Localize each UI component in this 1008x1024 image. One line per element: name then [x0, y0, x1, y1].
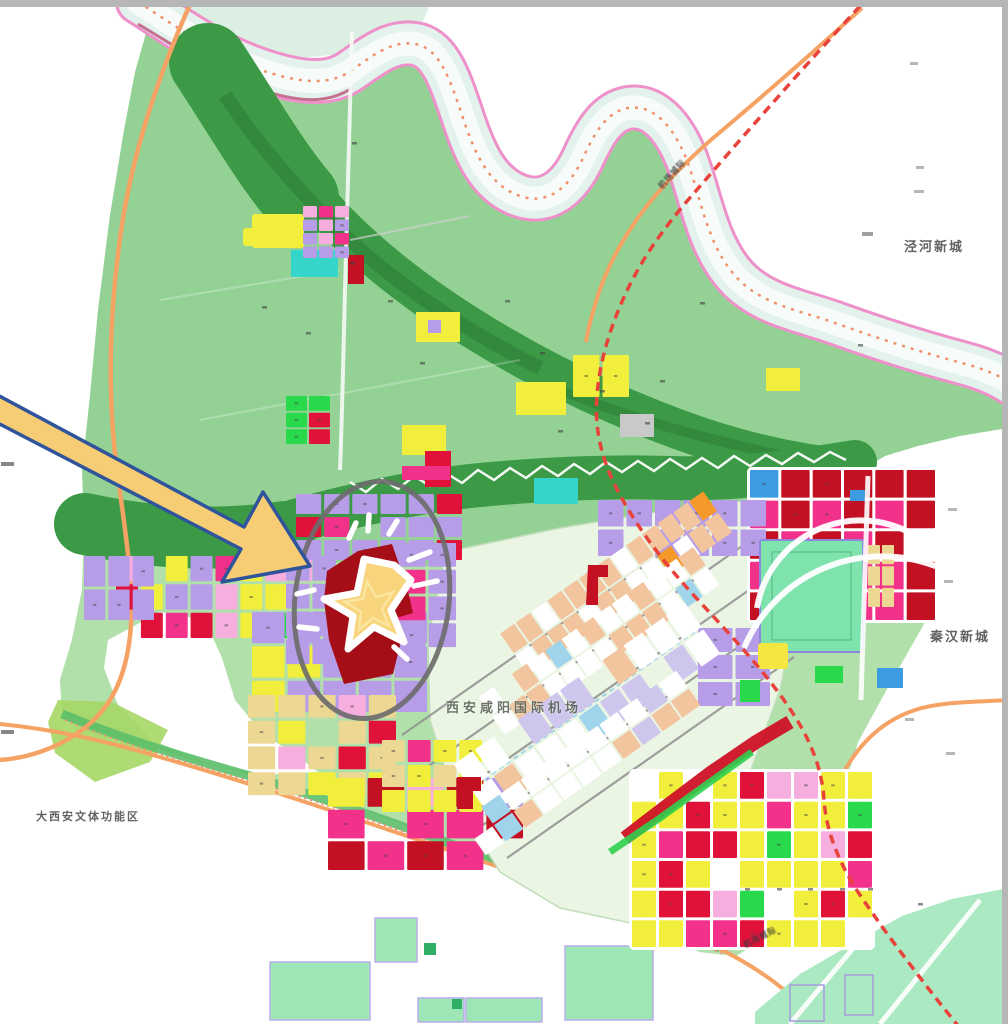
zone-cell-mark	[723, 542, 726, 544]
zone-cell-mark	[392, 750, 395, 752]
zone-cell-mark	[723, 933, 726, 935]
label-culture-sports-zone: 大西安文体功能区	[36, 808, 140, 824]
zone-cell	[767, 802, 791, 829]
mint-parcel-2	[375, 918, 417, 962]
zone-cell	[108, 556, 129, 587]
zone-cell	[339, 721, 366, 744]
zone-cell	[868, 566, 880, 585]
cyan-parcel-band	[534, 478, 578, 504]
zone-cell	[278, 747, 305, 770]
zone-cell	[794, 831, 818, 858]
map-canvas	[0, 0, 1008, 1024]
map-text-smudge	[777, 888, 782, 891]
zone-cell-mark	[714, 666, 717, 668]
map-text-smudge	[944, 580, 953, 583]
map-text-smudge	[388, 300, 393, 303]
zone-cell-mark	[752, 542, 755, 544]
map-text-smudge	[540, 352, 545, 355]
green-dot-2	[452, 999, 462, 1009]
zone-cell-mark	[175, 596, 178, 598]
zone-cell-mark	[424, 855, 427, 857]
zone-cell	[740, 802, 764, 829]
zone-cell	[713, 831, 737, 858]
zone-cell-mark	[463, 855, 466, 857]
map-text-smudge	[600, 390, 605, 393]
magenta-strip-a	[402, 466, 450, 480]
zone-cell-mark	[469, 750, 472, 752]
zone-cell	[278, 721, 305, 744]
zone-cell	[328, 778, 365, 807]
zone-cell-mark	[723, 784, 726, 786]
zone-cell-mark	[225, 624, 228, 626]
zone-cell-mark	[320, 757, 323, 759]
zone-cell	[296, 494, 321, 514]
map-text-smudge	[352, 142, 357, 145]
zone-cell-mark	[322, 567, 325, 569]
qinhan-green-parcel-2	[740, 680, 760, 702]
qinhan-green-parcel-1	[815, 666, 843, 683]
zone-cell-mark	[714, 639, 717, 641]
zone-cell-mark	[642, 873, 645, 875]
map-text-smudge	[1, 462, 14, 466]
map-text-smudge	[700, 302, 705, 305]
screenshot-frame: 泾河新城 秦汉新城 大西安文体功能区 西安咸阳国际机场 机场城际 机场城际	[0, 0, 1008, 1024]
zone-cell-mark	[440, 581, 443, 583]
zone-cell	[848, 831, 872, 858]
zone-cell-mark	[443, 750, 446, 752]
zone-cell	[794, 861, 818, 888]
zone-cell	[767, 772, 791, 799]
zone-cell	[303, 247, 317, 259]
zone-cell-mark	[609, 542, 612, 544]
zone-cell	[740, 861, 764, 888]
zone-cell	[216, 584, 238, 609]
zone-cell-mark	[858, 814, 861, 816]
zone-cell-mark	[804, 784, 807, 786]
zone-cell	[191, 584, 213, 609]
zone-cell-mark	[320, 705, 323, 707]
zone-cell-mark	[93, 604, 96, 606]
zone-cell-mark	[384, 855, 387, 857]
zone-cell-mark	[751, 666, 754, 668]
yellow-parcel-c	[516, 382, 566, 415]
zone-cell-mark	[295, 402, 298, 404]
zone-cell	[434, 765, 457, 787]
zone-cell-mark	[392, 775, 395, 777]
map-text-smudge	[808, 888, 813, 891]
zone-cell	[868, 588, 880, 607]
zone-cell	[84, 556, 105, 587]
zone-cell-mark	[340, 224, 343, 226]
map-text-smudge	[350, 262, 355, 265]
zone-cell	[848, 772, 872, 799]
zone-cell-mark	[335, 526, 338, 528]
zone-cell-mark	[409, 661, 412, 663]
map-text-smudge	[660, 380, 665, 383]
zone-cell-mark	[175, 624, 178, 626]
zone-cell-mark	[609, 512, 612, 514]
zone-cell-mark	[267, 627, 270, 629]
frame-top-bar	[0, 0, 1008, 7]
zone-cell	[781, 470, 809, 498]
zone-cell-mark	[318, 419, 321, 421]
zone-cell-mark	[804, 903, 807, 905]
map-text-smudge	[262, 306, 267, 309]
zone-cell-mark	[363, 503, 366, 505]
zone-cell-mark	[410, 634, 413, 636]
yellow-parcel-b	[402, 425, 446, 455]
yellow-parcel-d	[766, 368, 800, 391]
sparkle-dash-6	[297, 590, 314, 594]
map-text-smudge	[505, 300, 510, 303]
zone-cell	[309, 396, 330, 411]
zone-cell	[319, 233, 333, 245]
mint-parcel-5	[565, 946, 653, 1020]
zone-cell-mark	[825, 483, 828, 485]
zone-cell	[686, 831, 710, 858]
zone-cell-mark	[440, 607, 443, 609]
map-text-smudge	[918, 903, 923, 906]
map-text-smudge	[840, 888, 845, 891]
zone-cell-mark	[614, 375, 617, 377]
zone-cell	[821, 920, 845, 947]
zone-cell-mark	[345, 823, 348, 825]
zone-cell-mark	[714, 693, 717, 695]
zone-cell-mark	[638, 512, 641, 514]
zone-cell	[408, 740, 431, 762]
zone-cell	[319, 220, 333, 232]
qinhan-blue-parcel	[877, 668, 903, 688]
zone-cell-mark	[669, 784, 672, 786]
zone-cell-mark	[750, 784, 753, 786]
mint-parcel-1	[270, 962, 370, 1020]
zone-cell-mark	[417, 775, 420, 777]
zone-cell	[381, 494, 406, 514]
zone-cell	[335, 206, 349, 218]
map-text-smudge	[1, 730, 14, 734]
zone-cell-mark	[642, 844, 645, 846]
zone-cell	[686, 920, 710, 947]
qinhan-park	[760, 540, 863, 652]
zone-cell	[632, 891, 656, 918]
zone-cell	[309, 429, 330, 444]
zone-cell	[767, 861, 791, 888]
zone-cell	[382, 790, 405, 812]
zone-cell-mark	[350, 705, 353, 707]
zone-cell-mark	[831, 903, 834, 905]
map-text-smudge	[868, 888, 873, 891]
zone-cell-mark	[723, 814, 726, 816]
qinhan-blue-small	[850, 490, 865, 501]
zone-cell	[659, 831, 683, 858]
zone-cell	[437, 494, 462, 514]
zone-cell	[278, 772, 305, 795]
zone-cell-mark	[777, 844, 780, 846]
map-text-smudge	[858, 344, 863, 347]
crimson-parcel-north	[348, 255, 364, 284]
zone-cell	[659, 920, 683, 947]
zone-cell	[252, 646, 285, 677]
zone-cell	[166, 556, 188, 581]
zone-cell-mark	[250, 596, 253, 598]
zone-cell	[875, 470, 903, 498]
zone-cell-mark	[831, 784, 834, 786]
zone-cell-mark	[723, 512, 726, 514]
zone-cell	[409, 517, 434, 537]
map-text-smudge	[946, 752, 955, 755]
zone-cell	[303, 206, 317, 218]
zone-cell	[303, 233, 317, 245]
zone-cell	[686, 891, 710, 918]
map-text-smudge	[862, 232, 873, 236]
zone-cell	[248, 747, 275, 770]
zone-cell	[265, 584, 287, 609]
map-text-smudge	[306, 332, 311, 335]
zone-cell	[821, 831, 845, 858]
zone-cell-mark	[295, 419, 298, 421]
map-text-smudge	[558, 430, 563, 433]
zone-cell	[447, 810, 484, 839]
map-text-smudge	[916, 166, 924, 169]
zone-cell	[882, 588, 894, 607]
zone-cell	[794, 920, 818, 947]
zone-cell	[713, 891, 737, 918]
zone-cell	[339, 747, 366, 770]
zone-cell	[740, 891, 764, 918]
zone-cell-mark	[794, 513, 797, 515]
zone-cell	[191, 613, 213, 638]
gray-parcel-a	[620, 414, 654, 437]
label-jinghe-new-city: 泾河新城	[904, 236, 964, 255]
cluster-southeast-grid	[629, 769, 875, 950]
zone-cell-mark	[142, 570, 145, 572]
zone-cell-mark	[804, 814, 807, 816]
zone-cell	[434, 790, 457, 812]
sparkle-dash-2	[368, 515, 369, 531]
zone-cell-mark	[260, 783, 263, 785]
purple-parcel-a	[428, 320, 441, 333]
map-text-smudge	[910, 62, 918, 65]
map-text-smudge	[948, 508, 957, 511]
zone-cell	[133, 590, 154, 621]
map-text-smudge	[645, 422, 650, 425]
zone-cell	[278, 695, 305, 718]
zone-cell	[882, 566, 894, 585]
zone-cell-mark	[335, 549, 338, 551]
zone-cell	[319, 206, 333, 218]
zone-cell-mark	[762, 483, 765, 485]
zone-cell	[686, 861, 710, 888]
sparkle-dash-7	[299, 627, 317, 629]
zone-cell-mark	[669, 903, 672, 905]
zone-cell-mark	[295, 436, 298, 438]
zone-cell-mark	[696, 814, 699, 816]
zone-cell	[335, 233, 349, 245]
zone-cell-mark	[585, 375, 588, 377]
qinhan-yellow-blob	[758, 643, 788, 669]
zone-cell	[328, 841, 365, 870]
map-text-smudge	[420, 362, 425, 365]
yellow-blob-north-2	[243, 228, 265, 246]
zone-cell-mark	[669, 873, 672, 875]
zone-cell	[907, 592, 935, 620]
zone-cell	[319, 247, 333, 259]
zone-cell-mark	[410, 554, 413, 556]
zone-cell-mark	[424, 823, 427, 825]
map-text-smudge	[745, 888, 750, 891]
zone-cell	[408, 790, 431, 812]
zone-cell	[248, 695, 275, 718]
zone-cell-mark	[440, 554, 443, 556]
zone-cell-mark	[340, 251, 343, 253]
zone-cell-mark	[825, 513, 828, 515]
label-airport-name: 西安咸阳国际机场	[446, 697, 582, 716]
zone-cell-mark	[117, 604, 120, 606]
zone-cell	[740, 831, 764, 858]
zone-cell	[632, 920, 656, 947]
zone-cell-mark	[260, 731, 263, 733]
frame-right-bar	[1002, 0, 1008, 1024]
label-qinhan-new-city: 秦汉新城	[930, 626, 990, 645]
mint-parcel-4	[466, 998, 542, 1022]
zone-cell	[907, 470, 935, 498]
zone-cell	[303, 220, 317, 232]
green-dot-1	[424, 943, 436, 955]
map-text-smudge	[905, 718, 914, 721]
zone-cell-mark	[200, 568, 203, 570]
zone-cell	[907, 501, 935, 529]
zone-cell	[741, 500, 767, 527]
map-text-smudge	[914, 190, 924, 193]
